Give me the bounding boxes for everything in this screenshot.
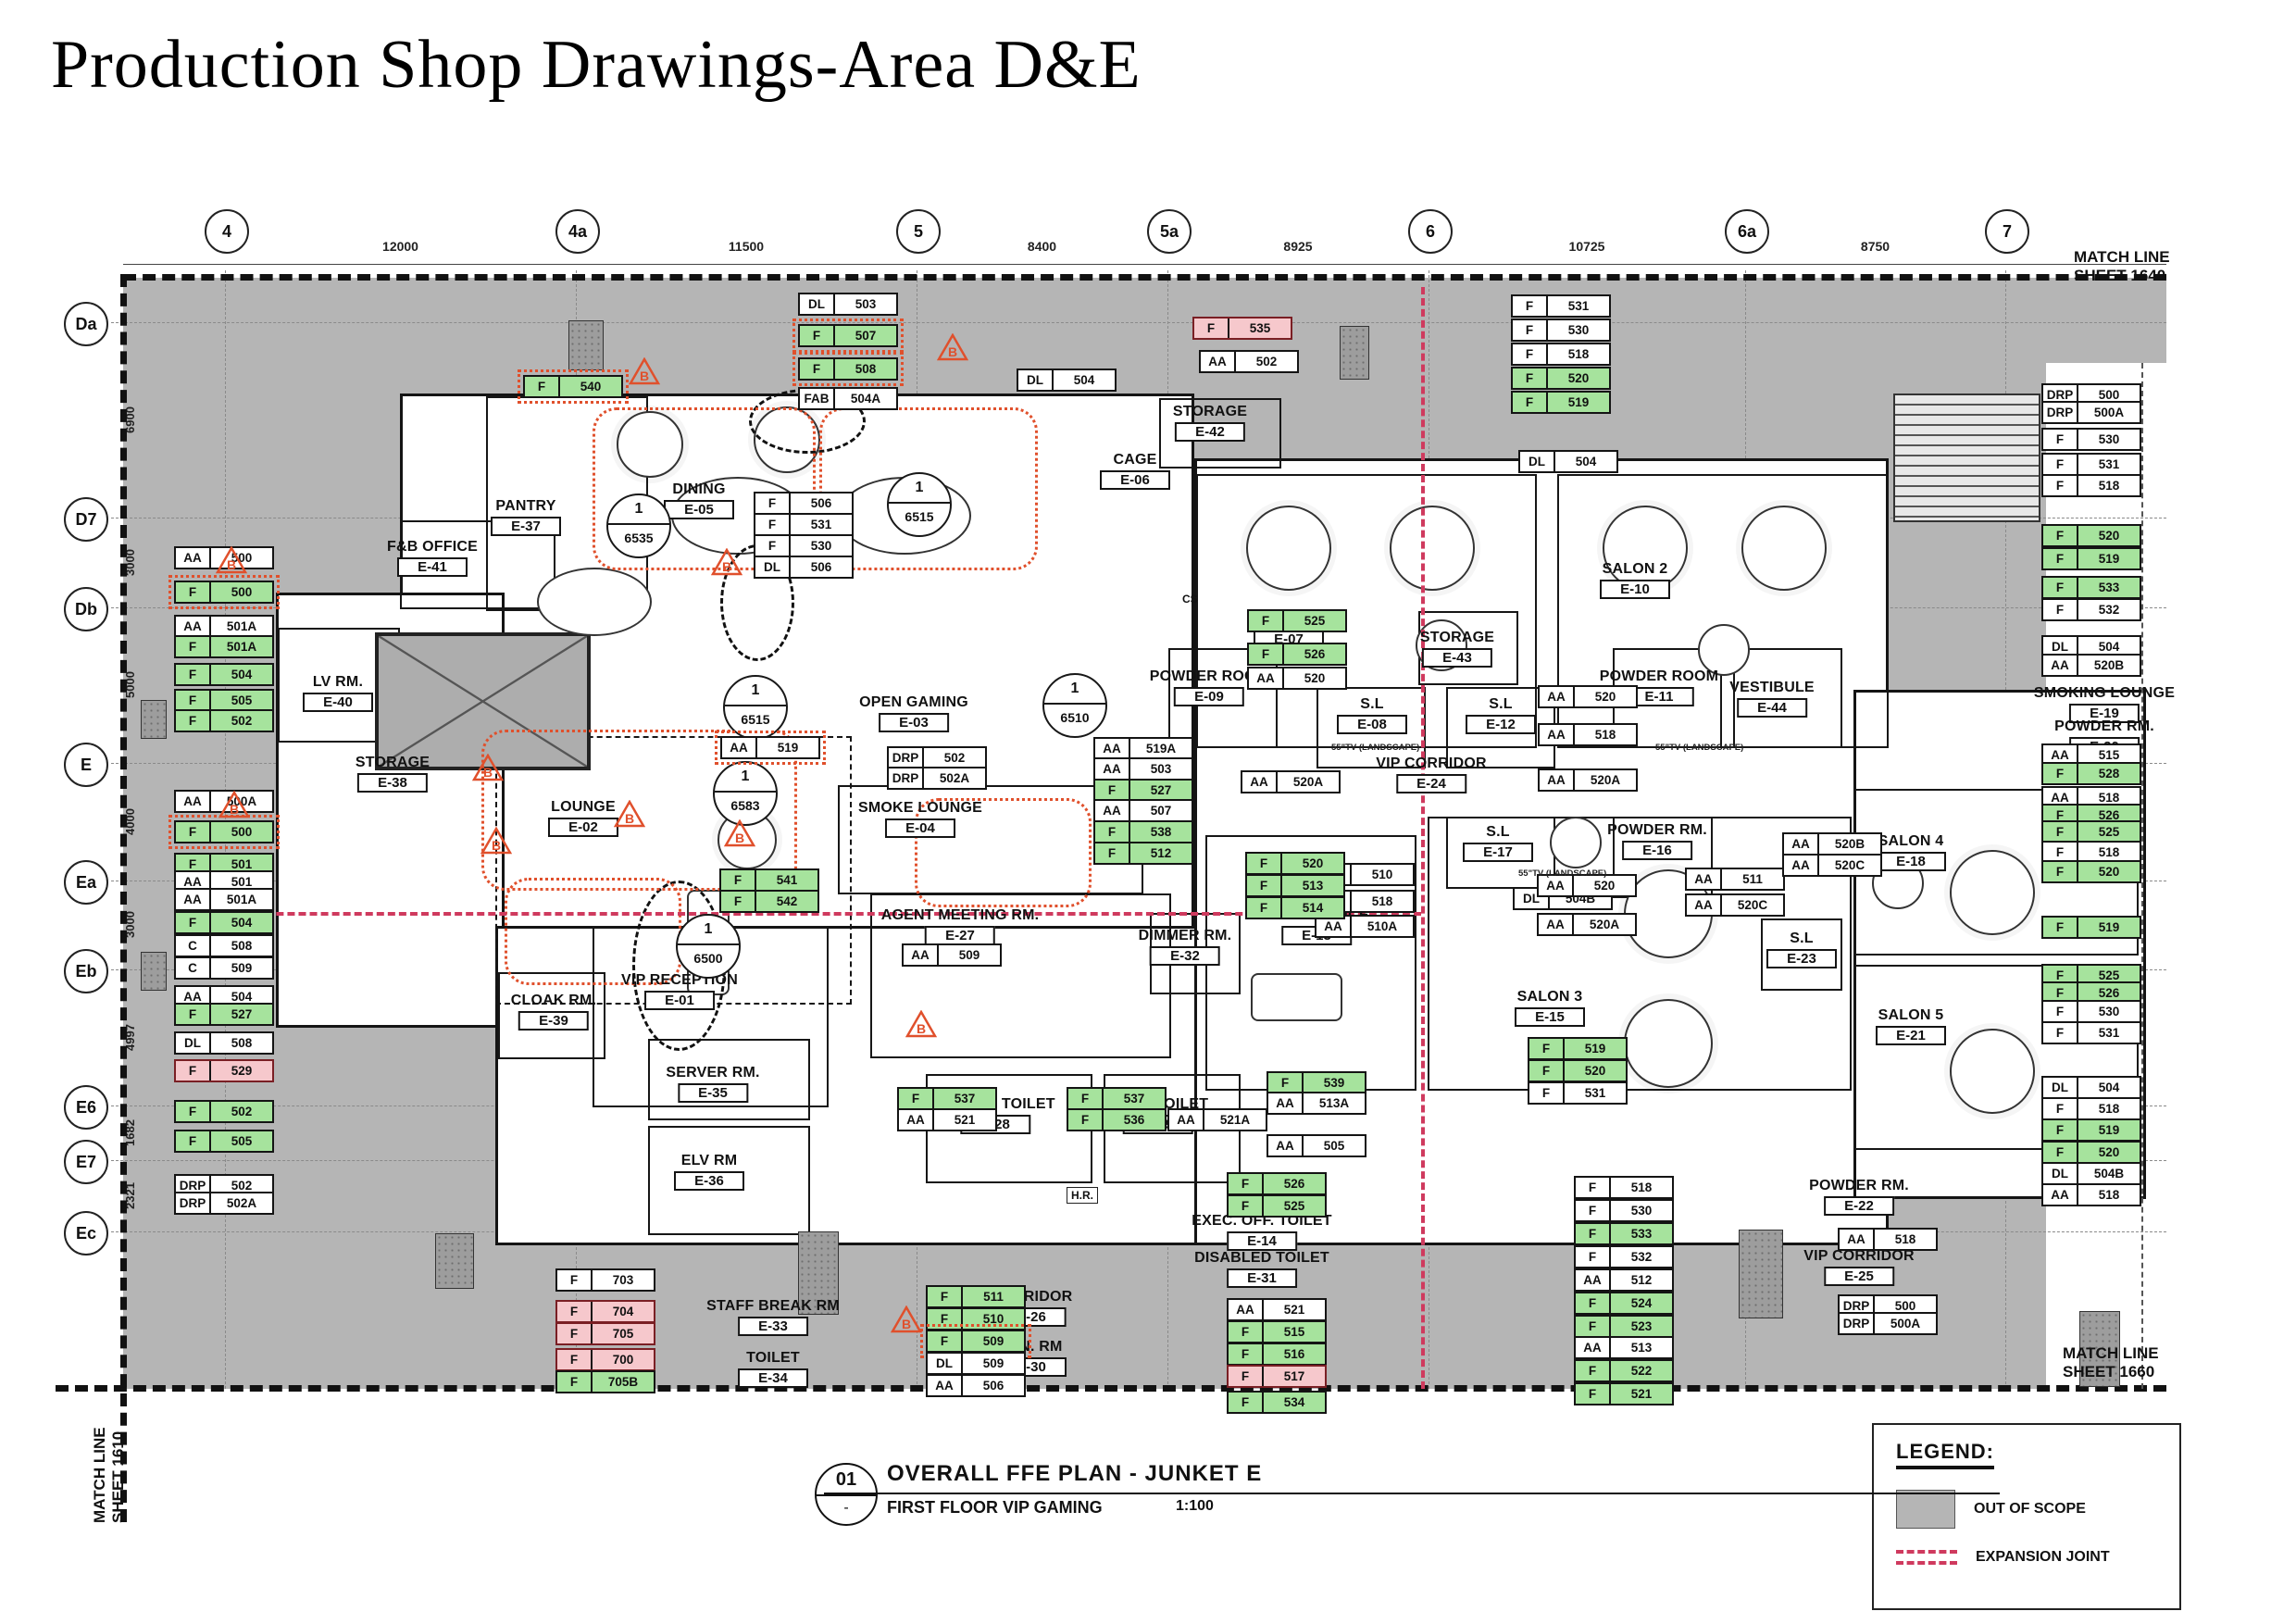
ffe-tag-f-532: F532 bbox=[2041, 598, 2141, 621]
ffe-tag-aa-503: AA503 bbox=[1093, 757, 1193, 781]
tag-number: 533 bbox=[2078, 578, 2140, 597]
view-title: OVERALL FFE PLAN - JUNKET E bbox=[887, 1461, 1262, 1487]
room-number: E-27 bbox=[925, 926, 995, 945]
tag-number: 532 bbox=[1611, 1247, 1672, 1267]
tag-number: 531 bbox=[1565, 1083, 1626, 1103]
room-number: E-01 bbox=[644, 991, 715, 1010]
match-line-top bbox=[123, 274, 2166, 281]
ffe-tag-f-519: F519 bbox=[1511, 391, 1611, 414]
detail-number-bubble: 01 - bbox=[815, 1463, 878, 1526]
ffe-tag-f-527: F527 bbox=[174, 1003, 274, 1026]
room-name: POWDER ROOM bbox=[1600, 668, 1718, 685]
tag-prefix: AA bbox=[1576, 1338, 1611, 1357]
tag-prefix: AA bbox=[1169, 1110, 1204, 1130]
grid-line-Da bbox=[111, 322, 2166, 323]
tag-number: 507 bbox=[1130, 801, 1192, 820]
ffe-tag-f-705b: F705B bbox=[555, 1370, 655, 1393]
ffe-tag-aa-520c: AA520C bbox=[1782, 854, 1882, 877]
tag-prefix: F bbox=[1229, 1196, 1264, 1216]
svg-text:B: B bbox=[230, 802, 239, 817]
furniture-round-table bbox=[1741, 506, 1827, 591]
tag-prefix: AA bbox=[899, 1110, 934, 1130]
tag-prefix: F bbox=[1576, 1247, 1611, 1267]
tag-number: 520 bbox=[1284, 668, 1345, 688]
tag-prefix: F bbox=[928, 1309, 963, 1329]
tag-number: 501A bbox=[211, 617, 272, 636]
grid-bubble-7: 7 bbox=[1985, 209, 2029, 254]
ffe-tag-f-536: F536 bbox=[1067, 1108, 1167, 1131]
ffe-tag-f-504: F504 bbox=[174, 911, 274, 934]
svg-text:B: B bbox=[902, 1317, 911, 1331]
tag-number: 537 bbox=[1104, 1089, 1165, 1108]
grid-bubble-E6: E6 bbox=[64, 1085, 108, 1130]
tag-prefix: F bbox=[525, 377, 560, 396]
tag-prefix: F bbox=[1268, 1073, 1304, 1093]
tag-prefix: AA bbox=[1687, 895, 1722, 915]
tag-prefix: AA bbox=[1268, 1093, 1304, 1113]
concrete-column bbox=[1340, 326, 1369, 380]
tag-number: 500A bbox=[1875, 1314, 1936, 1333]
tag-prefix: F bbox=[1576, 1293, 1611, 1313]
stair-well bbox=[1893, 394, 2040, 522]
ffe-tag-aa-509: AA509 bbox=[902, 943, 1002, 967]
tag-prefix: DL bbox=[1520, 452, 1555, 471]
tag-number: 512 bbox=[1130, 843, 1192, 863]
room-number: E-18 bbox=[1876, 852, 1946, 871]
tag-number: 530 bbox=[2078, 1002, 2140, 1021]
ffe-tag-f-509: F509 bbox=[926, 1330, 1026, 1353]
tag-prefix: F bbox=[1247, 876, 1282, 895]
tag-prefix: AA bbox=[1249, 668, 1284, 688]
ffe-tag-drp-500a: DRP500A bbox=[1838, 1312, 1938, 1335]
ffe-tag-dl-504: DL504 bbox=[2041, 1076, 2141, 1099]
tag-prefix: AA bbox=[1539, 876, 1574, 895]
ffe-tag-f-508: F508 bbox=[798, 357, 898, 381]
tag-number: 510 bbox=[963, 1309, 1024, 1329]
room-label-e-40: LV RM.E-40 bbox=[303, 674, 373, 712]
tag-prefix: F bbox=[800, 359, 835, 379]
grid-bubble-D7: D7 bbox=[64, 497, 108, 542]
grid-bubble-Ec: Ec bbox=[64, 1211, 108, 1255]
tag-number: 507 bbox=[835, 326, 896, 345]
room-number: E-25 bbox=[1824, 1267, 1894, 1286]
tag-prefix: F bbox=[1529, 1061, 1565, 1081]
ffe-tag-aa-520b: AA520B bbox=[1782, 832, 1882, 856]
room-number: E-36 bbox=[674, 1171, 744, 1191]
ffe-tag-f-531: F531 bbox=[1511, 294, 1611, 318]
concrete-column bbox=[435, 1233, 474, 1289]
detail-callout-6500: 16500 bbox=[676, 914, 741, 979]
revision-triangle: B bbox=[937, 333, 968, 361]
ffe-tag-drp-502a: DRP502A bbox=[174, 1192, 274, 1215]
svg-text:B: B bbox=[227, 557, 236, 572]
ffe-tag-f-516: F516 bbox=[1227, 1343, 1327, 1366]
legend-heading: LEGEND: bbox=[1896, 1440, 1994, 1469]
ffe-tag-drp-500a: DRP500A bbox=[2041, 401, 2141, 424]
tag-number: 537 bbox=[934, 1089, 995, 1108]
tag-number: 525 bbox=[2078, 822, 2140, 842]
out-of-scope-region bbox=[123, 278, 2166, 363]
tag-number: 500 bbox=[211, 582, 272, 602]
tag-number: 505 bbox=[211, 691, 272, 710]
tag-prefix: F bbox=[1068, 1110, 1104, 1130]
ffe-tag-f-530: F530 bbox=[1511, 319, 1611, 342]
ffe-tag-aa-501a: AA501A bbox=[174, 888, 274, 911]
tag-number: 502 bbox=[211, 1102, 272, 1121]
tag-number: 520 bbox=[2078, 526, 2140, 545]
room-name: SALON 2 bbox=[1600, 561, 1670, 578]
ffe-tag-f-535: F535 bbox=[1192, 317, 1292, 340]
room-label-e-42: STORAGEE-42 bbox=[1173, 404, 1247, 442]
view-subtitle: FIRST FLOOR VIP GAMING bbox=[887, 1498, 1103, 1518]
detail-callout-6515: 16515 bbox=[887, 472, 952, 537]
tag-number: 522 bbox=[1611, 1361, 1672, 1380]
tag-prefix: AA bbox=[1840, 1230, 1875, 1249]
concrete-column bbox=[1739, 1230, 1783, 1318]
ffe-tag-f-703: F703 bbox=[555, 1268, 655, 1292]
tag-prefix: AA bbox=[928, 1376, 963, 1395]
tag-prefix: F bbox=[1529, 1039, 1565, 1058]
svg-text:B: B bbox=[735, 831, 744, 845]
room-number: E-12 bbox=[1466, 715, 1536, 734]
ffe-tag-f-511: F511 bbox=[926, 1285, 1026, 1308]
furniture-round-table bbox=[1390, 506, 1475, 591]
tag-prefix: F bbox=[176, 822, 211, 842]
tag-prefix: AA bbox=[1201, 352, 1236, 371]
tag-number: 506 bbox=[791, 557, 852, 577]
room-number: E-09 bbox=[1174, 687, 1244, 706]
room-name: SERVER RM. bbox=[666, 1065, 759, 1081]
room-name: OPEN GAMING bbox=[859, 694, 968, 711]
tag-prefix: AA bbox=[1242, 772, 1278, 792]
ffe-tag-f-520: F520 bbox=[2041, 1141, 2141, 1164]
ffe-tag-f-502: F502 bbox=[174, 1100, 274, 1123]
tag-number: 704 bbox=[593, 1302, 654, 1321]
tag-number: 519 bbox=[1548, 393, 1609, 412]
tag-prefix: F bbox=[176, 1102, 211, 1121]
expansion-joint-symbol bbox=[1896, 1550, 1957, 1565]
tag-prefix: F bbox=[176, 582, 211, 602]
ffe-tag-f-530: F530 bbox=[754, 534, 854, 557]
tv-annotation: 55"TV (LANDSCAPE) bbox=[1655, 743, 1743, 753]
tag-number: 528 bbox=[2078, 764, 2140, 783]
tag-number: 518 bbox=[1548, 344, 1609, 364]
tag-prefix: F bbox=[2043, 862, 2078, 881]
room-label-e-05: DININGE-05 bbox=[664, 481, 734, 519]
ffe-tag-aa-520a: AA520A bbox=[1241, 770, 1341, 793]
tag-prefix: F bbox=[1576, 1224, 1611, 1243]
tag-number: 703 bbox=[593, 1270, 654, 1290]
tag-prefix: AA bbox=[1316, 917, 1352, 936]
tag-prefix: DL bbox=[800, 294, 835, 314]
ffe-tag-f-525: F525 bbox=[1227, 1194, 1327, 1218]
tag-number: 513A bbox=[1304, 1093, 1365, 1113]
tag-number: 521 bbox=[1611, 1384, 1672, 1404]
ffe-tag-f-522: F522 bbox=[1574, 1359, 1674, 1382]
tag-number: 506 bbox=[963, 1376, 1024, 1395]
room-name: LOUNGE bbox=[548, 799, 618, 816]
tag-prefix: F bbox=[557, 1350, 593, 1369]
ffe-tag-aa-520: AA520 bbox=[1247, 667, 1347, 690]
tag-prefix: F bbox=[1229, 1174, 1264, 1193]
tag-prefix: F bbox=[800, 326, 835, 345]
ffe-tag-f-530: F530 bbox=[1574, 1199, 1674, 1222]
ffe-tag-f-529: F529 bbox=[174, 1059, 274, 1082]
ffe-tag-f-513: F513 bbox=[1245, 874, 1345, 897]
ffe-tag-aa-520c: AA520C bbox=[1685, 893, 1785, 917]
grid-bubble-Ea: Ea bbox=[64, 860, 108, 905]
tag-prefix: F bbox=[2043, 1120, 2078, 1140]
room-name: POWDER RM. bbox=[1809, 1178, 1909, 1194]
ffe-tag-f-501a: F501A bbox=[174, 635, 274, 658]
svg-text:B: B bbox=[917, 1021, 926, 1036]
tag-prefix: F bbox=[1247, 854, 1282, 873]
room-label-e-35: SERVER RM.E-35 bbox=[666, 1065, 759, 1103]
room-number: E-41 bbox=[397, 557, 468, 577]
detail-callout-6583: 16583 bbox=[713, 761, 778, 826]
tag-prefix: F bbox=[1068, 1089, 1104, 1108]
ffe-tag-f-534: F534 bbox=[1227, 1391, 1327, 1414]
tag-number: 520B bbox=[1819, 834, 1880, 854]
tag-number: 502A bbox=[211, 1193, 272, 1213]
tag-number: 525 bbox=[1264, 1196, 1325, 1216]
tag-number: 705 bbox=[593, 1324, 654, 1343]
tag-prefix: AA bbox=[1784, 856, 1819, 875]
tag-number: 530 bbox=[2078, 430, 2140, 449]
room-label-e-43: STORAGEE-43 bbox=[1420, 630, 1494, 668]
ffe-tag-f-532: F532 bbox=[1574, 1245, 1674, 1268]
ffe-tag-f-531: F531 bbox=[2041, 453, 2141, 476]
tag-prefix: F bbox=[2043, 918, 2078, 937]
ffe-tag-f-518: F518 bbox=[1511, 343, 1611, 366]
tag-prefix: AA bbox=[1268, 1136, 1304, 1156]
tag-prefix: F bbox=[1576, 1384, 1611, 1404]
ffe-tag-f-540: F540 bbox=[523, 375, 623, 398]
grid-bubble-6: 6 bbox=[1408, 209, 1453, 254]
grid-bubble-4a: 4a bbox=[555, 209, 600, 254]
grid-bubble-4: 4 bbox=[205, 209, 249, 254]
room-number: E-03 bbox=[879, 713, 949, 732]
tag-prefix: AA bbox=[1687, 869, 1722, 889]
revision-triangle: B bbox=[711, 548, 742, 576]
tag-number: 510 bbox=[1352, 865, 1413, 884]
room-label-e-36: ELV RME-36 bbox=[674, 1153, 744, 1191]
tag-number: 527 bbox=[1130, 781, 1192, 800]
tag-number: 524 bbox=[1611, 1293, 1672, 1313]
tag-number: 503 bbox=[835, 294, 896, 314]
room-number: E-05 bbox=[664, 500, 734, 519]
ffe-tag-aa-520a: AA520A bbox=[1537, 913, 1637, 936]
tag-prefix: AA bbox=[1095, 739, 1130, 758]
tag-prefix: DL bbox=[176, 1033, 211, 1053]
ffe-tag-fab-504a: FAB504A bbox=[798, 387, 898, 410]
tag-prefix: F bbox=[1095, 843, 1130, 863]
ffe-tag-f-531: F531 bbox=[1528, 1081, 1628, 1105]
ffe-tag-f-704: F704 bbox=[555, 1300, 655, 1323]
ffe-tag-f-537: F537 bbox=[897, 1087, 997, 1110]
tv-annotation: 55"TV (LANDSCAPE) bbox=[1331, 743, 1419, 753]
ffe-tag-dl-504: DL504 bbox=[1017, 369, 1117, 392]
tag-number: 705B bbox=[593, 1372, 654, 1392]
room-name: F&B OFFICE bbox=[387, 539, 478, 556]
tag-number: 518 bbox=[1575, 725, 1636, 744]
tag-number: 518 bbox=[1875, 1230, 1936, 1249]
tag-number: 513 bbox=[1611, 1338, 1672, 1357]
room-label-e-22: POWDER RM.E-22 bbox=[1809, 1178, 1909, 1216]
grid-dim: 10725 bbox=[1569, 239, 1605, 254]
ffe-tag-f-507: F507 bbox=[798, 324, 898, 347]
tag-number: 505 bbox=[211, 1131, 272, 1151]
ffe-tag-f-520: F520 bbox=[1245, 852, 1345, 875]
room-label-e-17: S.LE-17 bbox=[1463, 824, 1533, 862]
room-label-e-41: F&B OFFICEE-41 bbox=[387, 539, 478, 577]
room-number: E-10 bbox=[1600, 580, 1670, 599]
tag-number: 700 bbox=[593, 1350, 654, 1369]
tag-number: 523 bbox=[1611, 1317, 1672, 1336]
ffe-tag-f-502: F502 bbox=[174, 709, 274, 732]
revision-triangle: B bbox=[218, 791, 250, 818]
tag-number: 505 bbox=[1304, 1136, 1365, 1156]
room-name: S.L bbox=[1337, 696, 1407, 713]
out-of-scope-swatch bbox=[1896, 1490, 1955, 1529]
tag-prefix: AA bbox=[2043, 656, 2078, 675]
tag-number: 520 bbox=[1565, 1061, 1626, 1081]
ffe-tag-aa-513: AA513 bbox=[1574, 1336, 1674, 1359]
tag-prefix: F bbox=[899, 1089, 934, 1108]
grid-bubble-5: 5 bbox=[896, 209, 941, 254]
furniture-round-table bbox=[1950, 1029, 2035, 1114]
room-number: E-38 bbox=[357, 773, 428, 793]
revision-triangle: B bbox=[472, 754, 504, 781]
detail-callout-6510: 16510 bbox=[1042, 673, 1107, 738]
tag-number: 518 bbox=[2078, 1099, 2140, 1118]
tag-prefix: F bbox=[755, 515, 791, 534]
room-name: VESTIBULE bbox=[1729, 680, 1815, 696]
ffe-tag-f-533: F533 bbox=[2041, 576, 2141, 599]
ffe-tag-f-506: F506 bbox=[754, 492, 854, 515]
tag-prefix: F bbox=[1576, 1178, 1611, 1197]
grid-bubble-E: E bbox=[64, 743, 108, 787]
ffe-tag-f-524: F524 bbox=[1574, 1292, 1674, 1315]
room-name: STAFF BREAK RM bbox=[706, 1298, 840, 1315]
tag-number: 540 bbox=[560, 377, 621, 396]
tag-prefix: F bbox=[1576, 1317, 1611, 1336]
tag-prefix: DRP bbox=[2043, 403, 2078, 422]
ffe-tag-aa-521: AA521 bbox=[897, 1108, 997, 1131]
room-name: VIP CORRIDOR bbox=[1376, 756, 1486, 772]
furniture-game-table bbox=[1550, 817, 1602, 868]
tag-prefix: F bbox=[2043, 1143, 2078, 1162]
room-number: E-34 bbox=[738, 1368, 808, 1388]
svg-text:B: B bbox=[625, 811, 634, 826]
ffe-tag-f-520: F520 bbox=[2041, 860, 2141, 883]
tag-number: 515 bbox=[1264, 1322, 1325, 1342]
room-number: E-17 bbox=[1463, 843, 1533, 862]
ffe-tag-f-523: F523 bbox=[1574, 1315, 1674, 1338]
room-label-e-24: VIP CORRIDORE-24 bbox=[1376, 756, 1486, 793]
room-label-e-14: EXEC. OFF. TOILETE-14 bbox=[1192, 1213, 1332, 1251]
room-number: E-14 bbox=[1227, 1231, 1297, 1251]
room-number: E-37 bbox=[491, 517, 561, 536]
tag-number: 530 bbox=[1611, 1201, 1672, 1220]
tag-number: 520 bbox=[2078, 1143, 2140, 1162]
tag-prefix: F bbox=[1095, 822, 1130, 842]
title-underline bbox=[824, 1493, 2000, 1494]
tag-prefix: F bbox=[1513, 320, 1548, 340]
room-name: SMOKING LOUNGE bbox=[2034, 685, 2175, 702]
tag-prefix: F bbox=[2043, 549, 2078, 568]
room-label-e-15: SALON 3E-15 bbox=[1515, 989, 1585, 1027]
room-label-e-01: VIP RECEPTIONE-01 bbox=[621, 972, 738, 1010]
room-label-e-12: S.LE-12 bbox=[1466, 696, 1536, 734]
room-number: E-44 bbox=[1737, 698, 1807, 718]
room-label-e-10: SALON 2E-10 bbox=[1600, 561, 1670, 599]
tag-prefix: DRP bbox=[1840, 1314, 1875, 1333]
tag-prefix: AA bbox=[1540, 770, 1575, 790]
tag-prefix: C bbox=[176, 958, 211, 978]
room-name: SMOKE LOUNGE bbox=[858, 800, 982, 817]
room-name: STORAGE bbox=[1173, 404, 1247, 420]
ffe-tag-f-517: F517 bbox=[1227, 1365, 1327, 1388]
tag-prefix: F bbox=[1247, 898, 1282, 918]
room-label-e-04: SMOKE LOUNGEE-04 bbox=[858, 800, 982, 838]
tag-prefix: AA bbox=[722, 738, 757, 757]
concrete-column bbox=[141, 952, 167, 991]
sheet-boundary-right bbox=[2141, 363, 2143, 1389]
tag-number: 503 bbox=[1130, 759, 1192, 779]
tag-number: 517 bbox=[1264, 1367, 1325, 1386]
room-name: STORAGE bbox=[1420, 630, 1494, 646]
legend: LEGEND: OUT OF SCOPE EXPANSION JOINT bbox=[1872, 1423, 2181, 1610]
tag-prefix: F bbox=[1529, 1083, 1565, 1103]
room-label-e-18: SALON 4E-18 bbox=[1876, 833, 1946, 871]
tag-number: 521 bbox=[1264, 1300, 1325, 1319]
ffe-tag-f-530: F530 bbox=[2041, 1000, 2141, 1023]
detail-callout-6535: 16535 bbox=[606, 493, 671, 558]
room-name: PANTRY bbox=[491, 498, 561, 515]
grid-bubble-Da: Da bbox=[64, 302, 108, 346]
tag-number: 531 bbox=[791, 515, 852, 534]
tag-prefix: F bbox=[721, 892, 756, 911]
tag-number: 526 bbox=[1264, 1174, 1325, 1193]
tag-prefix: F bbox=[2043, 476, 2078, 495]
room-name: STORAGE bbox=[356, 755, 430, 771]
ffe-tag-f-500: F500 bbox=[174, 581, 274, 604]
tag-prefix: AA bbox=[1229, 1300, 1264, 1319]
tag-prefix: F bbox=[557, 1372, 593, 1392]
svg-text:B: B bbox=[640, 369, 649, 383]
room-number: E-39 bbox=[518, 1011, 589, 1031]
tag-prefix: F bbox=[755, 536, 791, 556]
tag-prefix: F bbox=[2043, 600, 2078, 619]
tag-number: 502 bbox=[924, 748, 985, 768]
ffe-tag-f-519: F519 bbox=[2041, 547, 2141, 570]
tag-prefix: FAB bbox=[800, 389, 835, 408]
tag-number: 501A bbox=[211, 637, 272, 656]
tag-prefix: DRP bbox=[889, 748, 924, 768]
room-label-e-25: VIP CORRIDORE-25 bbox=[1803, 1248, 1914, 1286]
tag-prefix: AA bbox=[1095, 801, 1130, 820]
ffe-tag-f-520: F520 bbox=[1528, 1059, 1628, 1082]
tv-annotation: 55"TV (LANDSCAPE) bbox=[1518, 868, 1606, 879]
grid-bubble-6a: 6a bbox=[1725, 209, 1769, 254]
tag-number: 518 bbox=[1352, 892, 1413, 911]
tag-number: 504 bbox=[1054, 370, 1115, 390]
tag-prefix: F bbox=[721, 870, 756, 890]
tag-number: 520 bbox=[1574, 876, 1635, 895]
grid-dim: 8925 bbox=[1283, 239, 1312, 254]
ffe-tag-f-525: F525 bbox=[1247, 609, 1347, 632]
